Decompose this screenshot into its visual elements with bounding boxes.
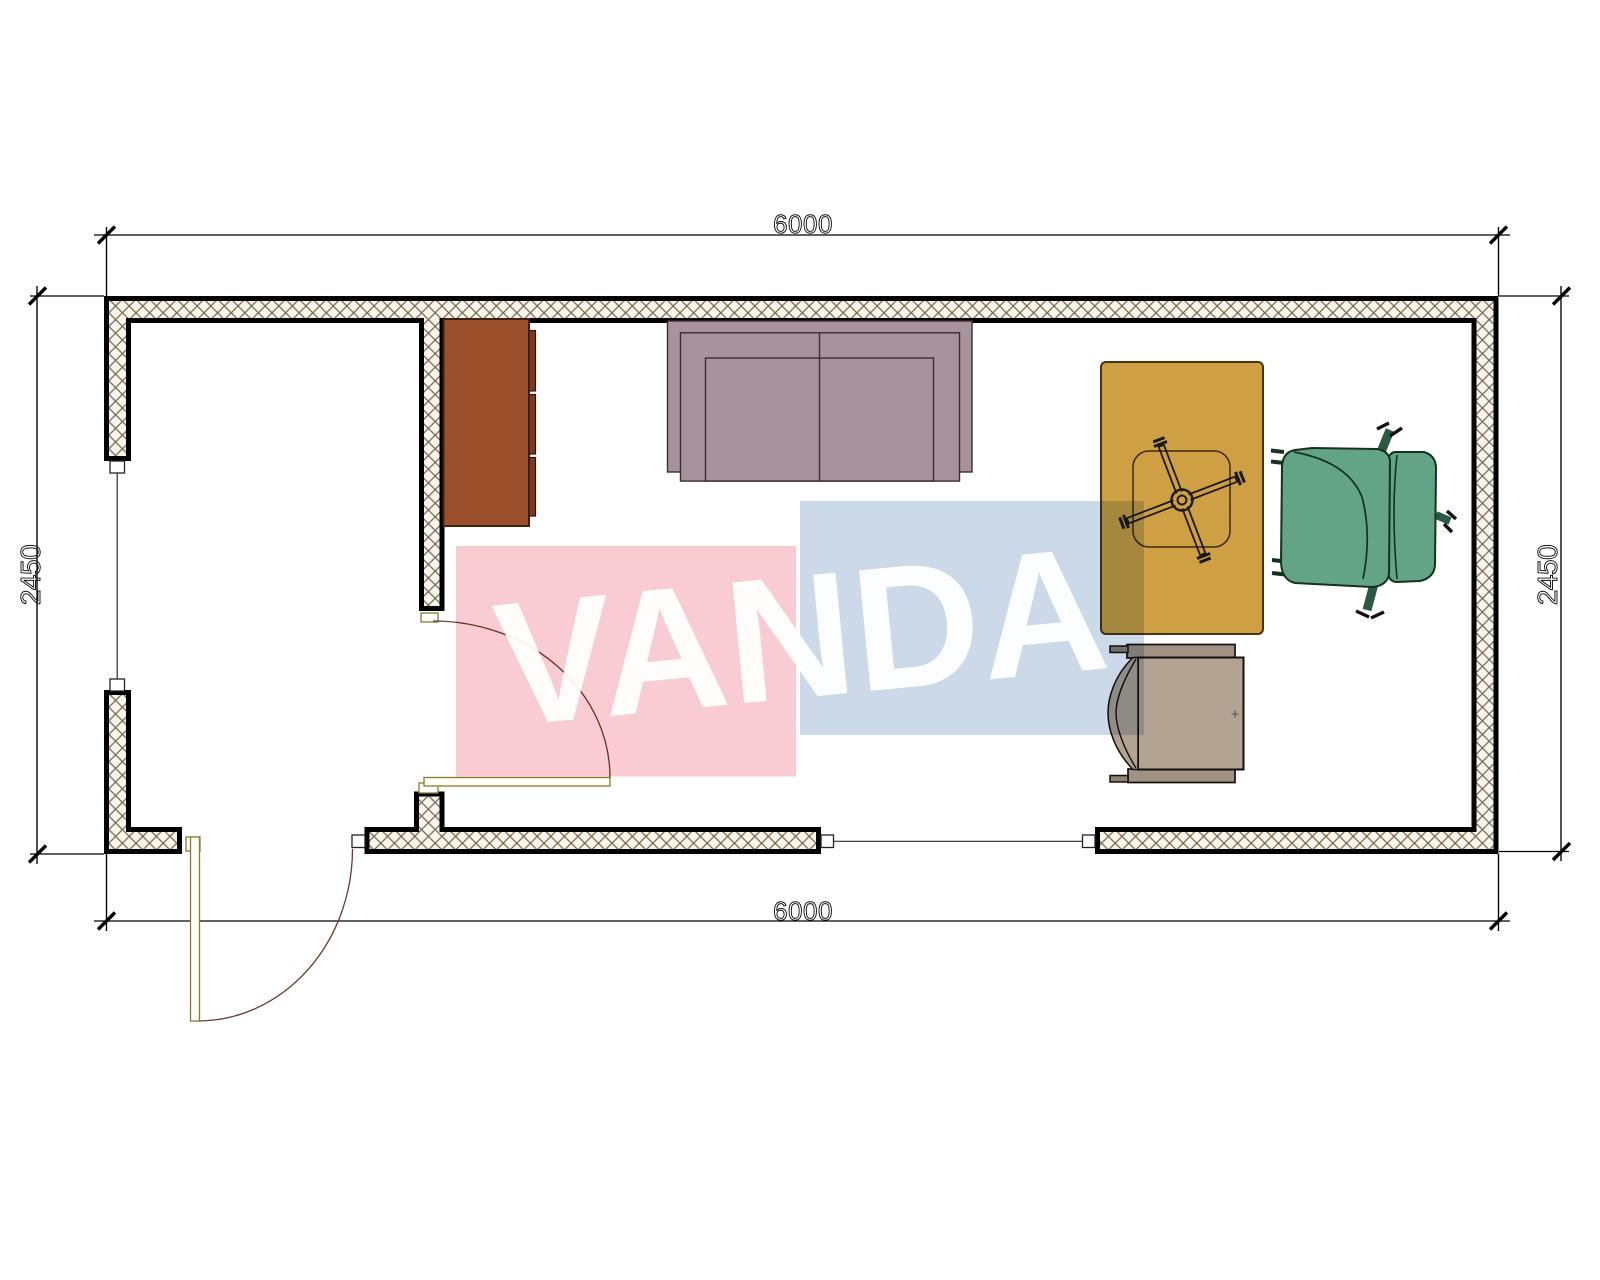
svg-text:6000: 6000 [773, 209, 833, 239]
svg-text:2450: 2450 [15, 545, 46, 605]
svg-text:6000: 6000 [773, 896, 833, 926]
svg-text:2450: 2450 [1532, 545, 1563, 605]
